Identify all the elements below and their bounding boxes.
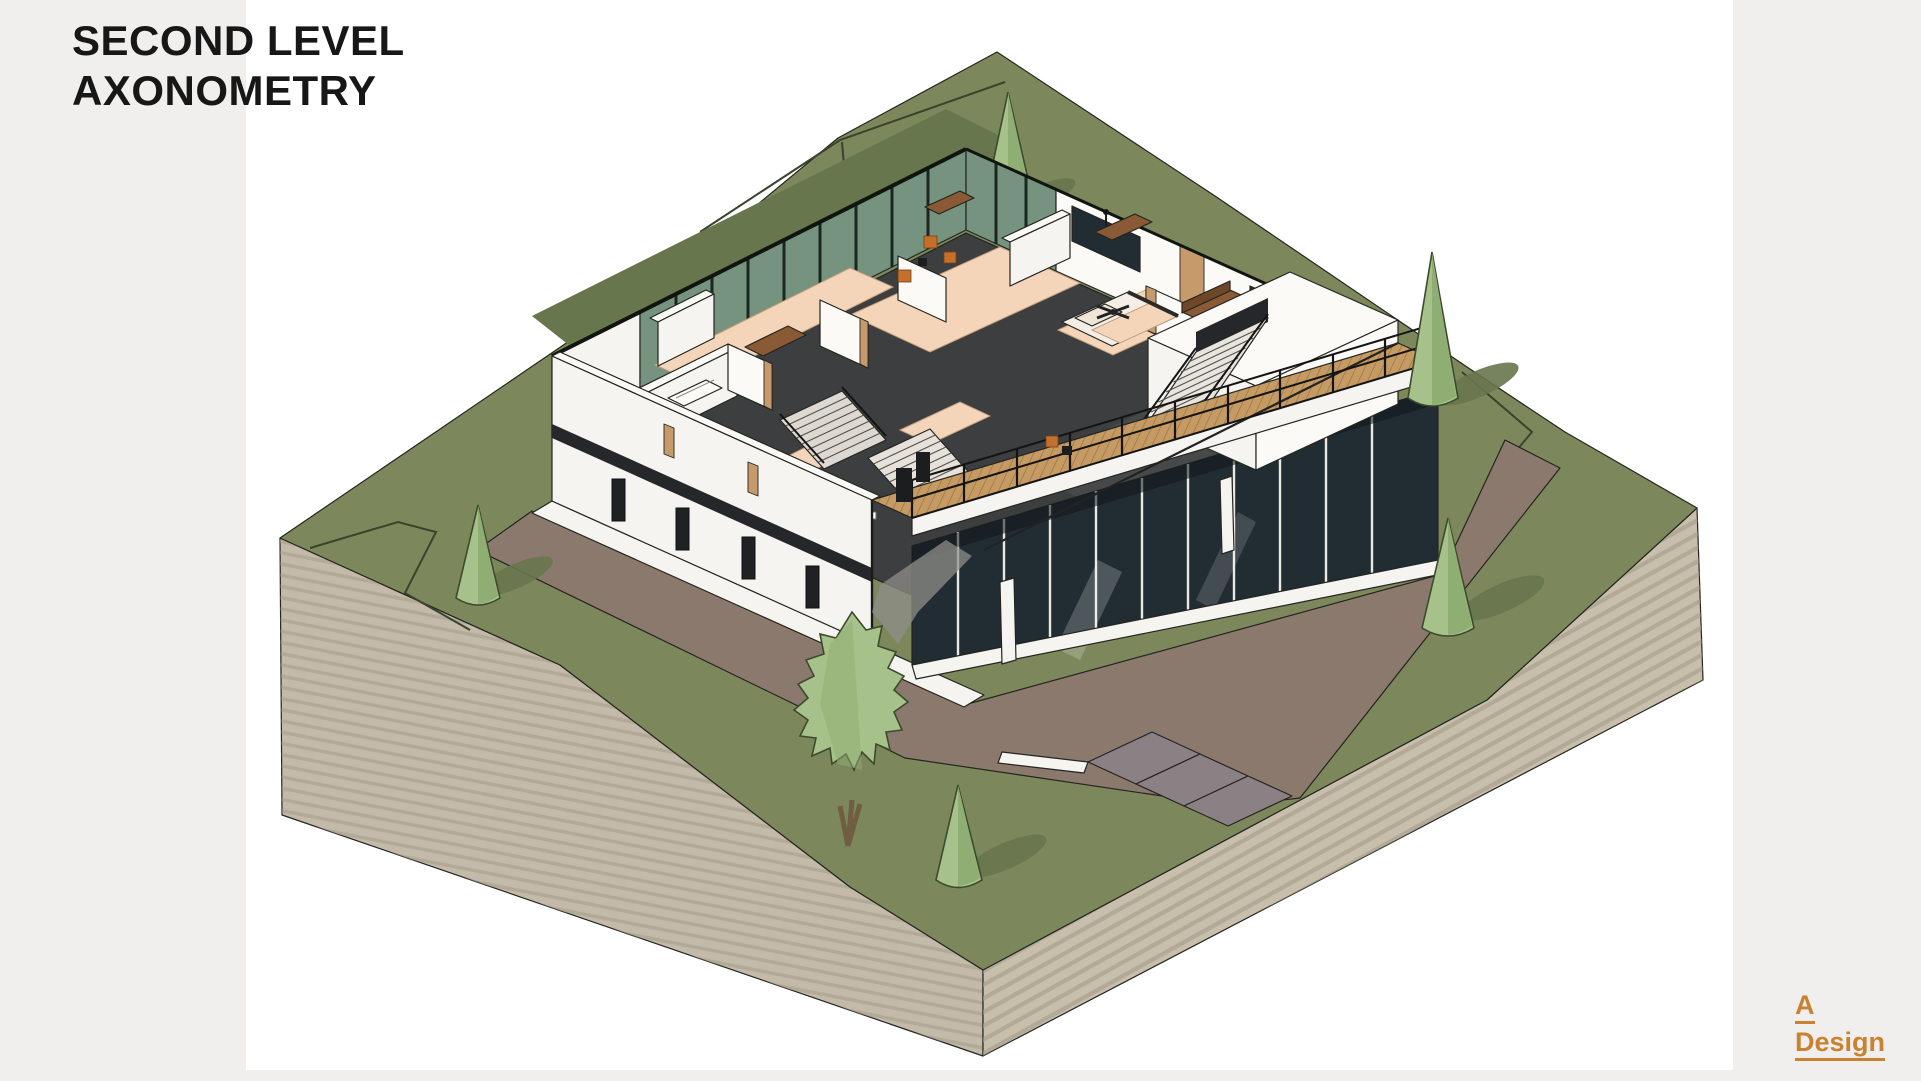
slide-page: { "title": { "line1": "SECOND LEVEL", "l… bbox=[0, 0, 1921, 1081]
page-title: SECOND LEVEL AXONOMETRY bbox=[72, 16, 405, 116]
brand-logo-word: Design bbox=[1795, 1027, 1885, 1061]
window-slit bbox=[612, 479, 625, 521]
window-slit bbox=[676, 508, 689, 550]
brand-logo-initial: A bbox=[1795, 990, 1815, 1024]
door-slit bbox=[664, 424, 674, 458]
deck-column bbox=[1220, 476, 1234, 554]
window-slit bbox=[806, 566, 819, 608]
window-slit bbox=[742, 537, 755, 579]
tree-right-upper bbox=[1408, 252, 1523, 414]
axonometric-illustration bbox=[0, 0, 1921, 1081]
title-line-1: SECOND LEVEL bbox=[72, 16, 405, 66]
brand-logo: A Design bbox=[1795, 990, 1885, 1064]
title-line-2: AXONOMETRY bbox=[72, 66, 405, 116]
deck-column bbox=[1000, 578, 1016, 664]
door-slit bbox=[748, 462, 758, 496]
